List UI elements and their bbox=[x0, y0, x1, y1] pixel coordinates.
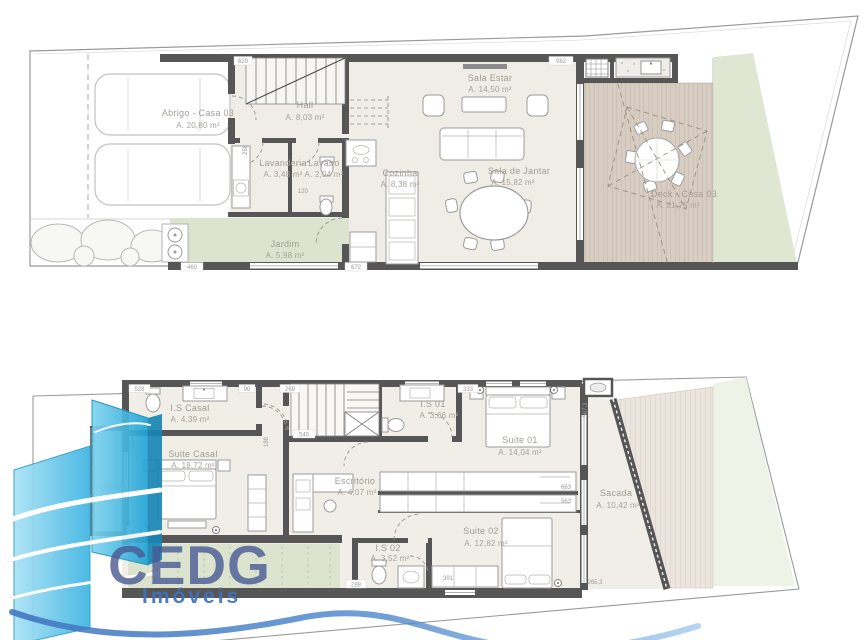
dimension-label: 90 bbox=[244, 387, 251, 393]
room-label-cozinha-area: A. 8,38 m² bbox=[381, 180, 420, 189]
dimension-label: 620 bbox=[238, 59, 249, 65]
room-label-suite-casal-area: A. 18,72 m² bbox=[171, 461, 215, 470]
room-label-sala-estar-name: Sala Estar bbox=[468, 73, 513, 83]
dimension-label: 269 bbox=[285, 387, 296, 393]
floor-plan-image: Abrigo - Casa 03 A. 20,80 m² Hall A. 8,0… bbox=[0, 0, 865, 640]
dimension-label: 288 bbox=[351, 583, 362, 589]
room-label-suite-02-area: A. 12,82 m² bbox=[464, 539, 508, 548]
room-label-jardim-area: A. 5,98 m² bbox=[266, 251, 305, 260]
tv-panel bbox=[463, 64, 507, 69]
room-label-is-casal-name: I.S Casal bbox=[170, 403, 209, 413]
room-label-deck-name: Deck - Casa 03 bbox=[651, 189, 717, 199]
room-label-abrigo-area: A. 20,80 m² bbox=[176, 121, 220, 130]
room-label-jardim-name: Jardim bbox=[271, 239, 300, 249]
room-label-hall-area: A. 8,03 m² bbox=[286, 113, 325, 122]
room-label-suite-01-name: Suite 01 bbox=[502, 435, 537, 445]
dimension-label: 528 bbox=[134, 387, 145, 393]
sofa bbox=[440, 128, 524, 160]
room-label-sacada-fundos-name: Sacada bbox=[600, 488, 632, 498]
dimension-label: 567,3 bbox=[583, 402, 589, 418]
tech-room bbox=[584, 379, 612, 396]
bbq-grill bbox=[586, 59, 608, 77]
room-label-lavabo-area: A. 2,04 m² bbox=[305, 170, 344, 179]
room-label-abrigo-name: Abrigo - Casa 03 bbox=[162, 108, 234, 118]
dimension-label: 391 bbox=[443, 576, 454, 582]
armchair bbox=[527, 95, 548, 116]
dimension-label: 333 bbox=[463, 387, 474, 393]
dimension-label: 563 bbox=[561, 499, 572, 505]
room-label-hall-name: Hall bbox=[297, 100, 314, 110]
bbq-counter-sink bbox=[616, 58, 670, 77]
room-label-suite-02-name: Suite 02 bbox=[463, 526, 498, 536]
dimension-label: 120 bbox=[298, 189, 309, 195]
room-label-deck-area: A. 21,76 m² bbox=[656, 201, 700, 210]
room-label-sala-jantar-name: Sala de Jantar bbox=[488, 166, 550, 176]
room-label-sacada-fundos-area: A. 10,42 m² bbox=[596, 501, 640, 510]
dimension-label: 460 bbox=[187, 265, 198, 271]
bed bbox=[502, 518, 552, 588]
dining-table bbox=[460, 186, 528, 240]
room-label-escritorio-area: A. 4,07 m² bbox=[338, 488, 377, 497]
room-label-is-02-area: A. 3,52 m² bbox=[371, 554, 410, 563]
bed-headboard bbox=[486, 387, 550, 395]
room-label-sala-estar-area: A. 14,50 m² bbox=[468, 85, 512, 94]
room-label-is-casal-area: A. 4,39 m² bbox=[171, 415, 210, 424]
coffee-table bbox=[462, 97, 506, 112]
dimension-label: 265,3 bbox=[587, 580, 603, 586]
room-label-lavanderia-area: A. 3,48 m² bbox=[264, 170, 303, 179]
bed bbox=[158, 469, 216, 519]
room-label-lavabo-name: Lavabo bbox=[308, 158, 339, 168]
room-label-is-02-name: I.S 02 bbox=[375, 543, 400, 553]
room-label-lavanderia-name: Lavanderia bbox=[259, 158, 307, 168]
room-label-is-01-area: A. 3,66 m² bbox=[420, 411, 459, 420]
room-label-suite-01-area: A. 14,04 m² bbox=[498, 448, 542, 457]
room-label-suite-casal-name: Suite Casal bbox=[168, 449, 217, 459]
cedg-logo-tagline: Imóveis bbox=[142, 586, 241, 607]
staircase bbox=[291, 384, 379, 436]
dimension-label: 188 bbox=[264, 436, 270, 447]
dimension-label: 982 bbox=[556, 59, 567, 65]
car bbox=[95, 144, 230, 205]
room-label-is-01-name: I.S 01 bbox=[420, 399, 445, 409]
room-label-sala-jantar-area: A. 15,82 m² bbox=[491, 178, 535, 187]
armchair bbox=[423, 95, 444, 116]
ground-floor-plan: Abrigo - Casa 03 A. 20,80 m² Hall A. 8,0… bbox=[30, 16, 858, 271]
dimension-label: 672 bbox=[351, 265, 362, 271]
bed-bench bbox=[168, 521, 206, 528]
laundry-tubs bbox=[162, 224, 188, 262]
dimension-label: 258 bbox=[243, 144, 249, 155]
room-label-cozinha-name: Cozinha bbox=[382, 168, 417, 178]
room-jardim bbox=[170, 218, 343, 264]
dimension-label: 663 bbox=[561, 485, 572, 491]
room-label-escritorio-name: Escritório bbox=[335, 476, 376, 486]
dimension-label: 540 bbox=[299, 433, 310, 439]
wardrobe bbox=[432, 566, 498, 587]
